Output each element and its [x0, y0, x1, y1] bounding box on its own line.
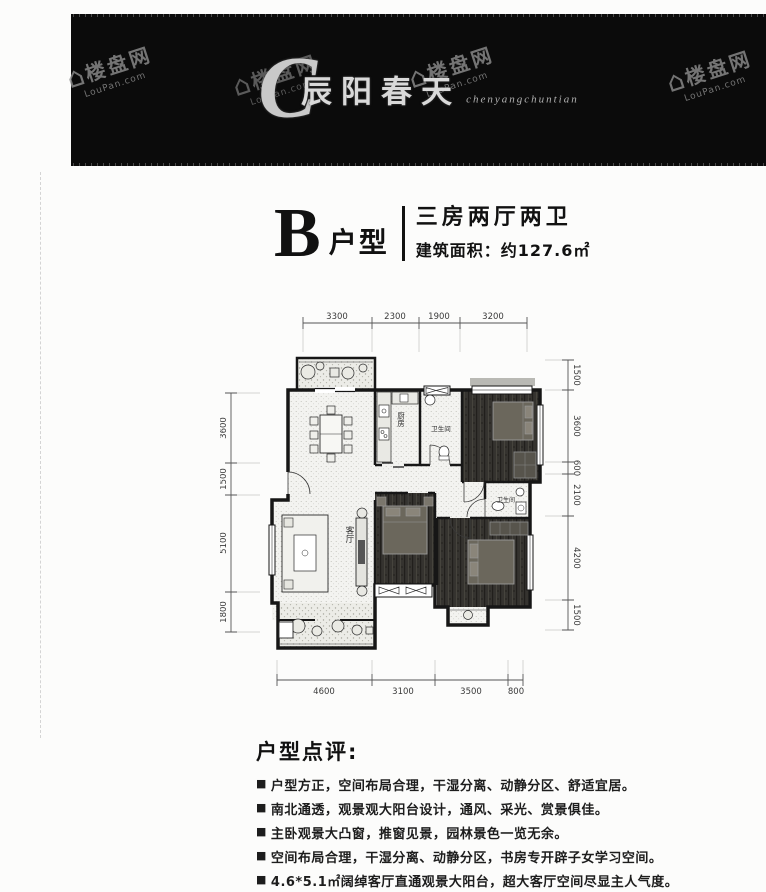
dim-label: 5100 [220, 532, 229, 554]
bedroom-middle-window [375, 584, 432, 597]
dim-label: 3600 [571, 415, 581, 437]
review-list: ■ 户型方正，空间布局合理，干湿分离、动静分区、舒适宜居。 ■ 南北通透，观景观… [256, 775, 756, 890]
coffee-table [294, 535, 316, 571]
unit-label: 户型 [329, 221, 389, 261]
bath-top-label: 卫生间 [431, 424, 451, 433]
window-ledge [470, 378, 535, 386]
dim-label: 3100 [392, 687, 414, 697]
dimension-top [303, 317, 527, 352]
bullet-marker: ■ [256, 871, 267, 890]
dim-label: 3600 [220, 417, 229, 439]
logo-name: 辰阳春天 [301, 74, 461, 109]
dim-label: 4200 [571, 547, 581, 569]
bullet-marker: ■ [256, 799, 267, 818]
dim-label: 1500 [571, 364, 581, 386]
bullet-text: 主卧观景大凸窗，推窗见景，园林景色一览无余。 [271, 823, 568, 842]
review-section: 户型点评: ■ 户型方正，空间布局合理，干湿分离、动静分区、舒适宜居。 ■ 南北… [256, 736, 756, 892]
unit-layout: 三房两厅两卫 [416, 199, 591, 231]
logo-script: chenyangchuntian [466, 93, 579, 105]
review-bullet: ■ 主卧观景大凸窗，推窗见景，园林景色一览无余。 [256, 823, 756, 842]
review-bullet: ■ 4.6*5.1㎡阔绰客厅直通观景大阳台，超大客厅空间尽显主人气度。 [256, 871, 756, 890]
dimension-bottom [277, 660, 523, 686]
dim-label: 600 [571, 460, 581, 476]
bullet-marker: ■ [256, 847, 267, 866]
bullet-text: 户型方正，空间布局合理，干湿分离、动静分区、舒适宜居。 [271, 775, 636, 794]
dimension-right [545, 360, 574, 630]
kitchen-sink [379, 405, 389, 417]
dim-label: 4600 [313, 687, 335, 697]
unit-title-block: B 户型 三房两厅两卫 建筑面积：约127.6㎡ [274, 199, 590, 262]
plant [357, 586, 367, 596]
review-bullet: ■ 户型方正，空间布局合理，干湿分离、动静分区、舒适宜居。 [256, 775, 756, 794]
tv [358, 540, 365, 564]
dim-label: 2100 [571, 484, 581, 506]
bath-sink [425, 395, 435, 405]
project-logo: C 辰阳春天 chenyangchuntian [258, 53, 578, 123]
unit-area: 建筑面积：约127.6㎡ [416, 237, 591, 261]
bath-right-label: 卫生间 [497, 496, 515, 504]
header-banner: ⌂楼盘网 LouPan.com ⌂楼盘网 LouPan.com ⌂楼盘网 Lou… [71, 17, 766, 163]
brochure-page: ⌂楼盘网 LouPan.com ⌂楼盘网 LouPan.com ⌂楼盘网 Lou… [0, 0, 766, 892]
review-bullet: ■ 南北通透，观景观大阳台设计，通风、采光、赏景俱佳。 [256, 799, 756, 818]
bullet-text: 南北通透，观景观大阳台设计，通风、采光、赏景俱佳。 [271, 799, 609, 818]
floor-plan: 厨房 卫生间 客厅 卫生间 3300 2300 1900 3200 4600 [220, 300, 600, 700]
review-heading: 户型点评: [256, 736, 756, 766]
bullet-text: 4.6*5.1㎡阔绰客厅直通观景大阳台，超大客厅空间尽显主人气度。 [271, 871, 678, 890]
bullet-text: 空间布局合理，干湿分离、动静分区，书房专开辟子女学习空间。 [271, 847, 663, 866]
dim-label: 800 [508, 687, 524, 697]
loupan-watermark: ⌂楼盘网 LouPan.com [663, 44, 759, 107]
dim-label: 2300 [384, 312, 406, 322]
title-divider [402, 206, 405, 261]
dim-label: 1800 [220, 601, 229, 623]
scan-artifact-line [40, 172, 41, 738]
dim-label: 3300 [326, 312, 348, 322]
review-bullet: ■ 空间布局合理，干湿分离、动静分区，书房专开辟子女学习空间。 [256, 847, 756, 866]
dim-label: 1500 [220, 468, 229, 490]
bullet-marker: ■ [256, 775, 267, 794]
balcony-slider-gap [315, 387, 355, 393]
plant [357, 508, 367, 518]
dim-label: 1900 [428, 312, 450, 322]
unit-letter: B [274, 207, 321, 262]
dim-label: 3200 [482, 312, 504, 322]
kitchen-stove [379, 428, 389, 440]
bath-right-sink [516, 488, 524, 496]
utility-box [279, 622, 293, 638]
wardrobe-right [490, 522, 528, 535]
kitchen-label: 厨房 [396, 412, 405, 429]
kitchen-counter [377, 392, 391, 462]
bullet-marker: ■ [256, 823, 267, 842]
dimension-left [225, 393, 260, 632]
loupan-watermark: ⌂楼盘网 LouPan.com [63, 40, 159, 103]
dim-label: 3500 [460, 687, 482, 697]
living-label: 客厅 [344, 525, 354, 543]
dim-label: 1500 [571, 604, 581, 626]
